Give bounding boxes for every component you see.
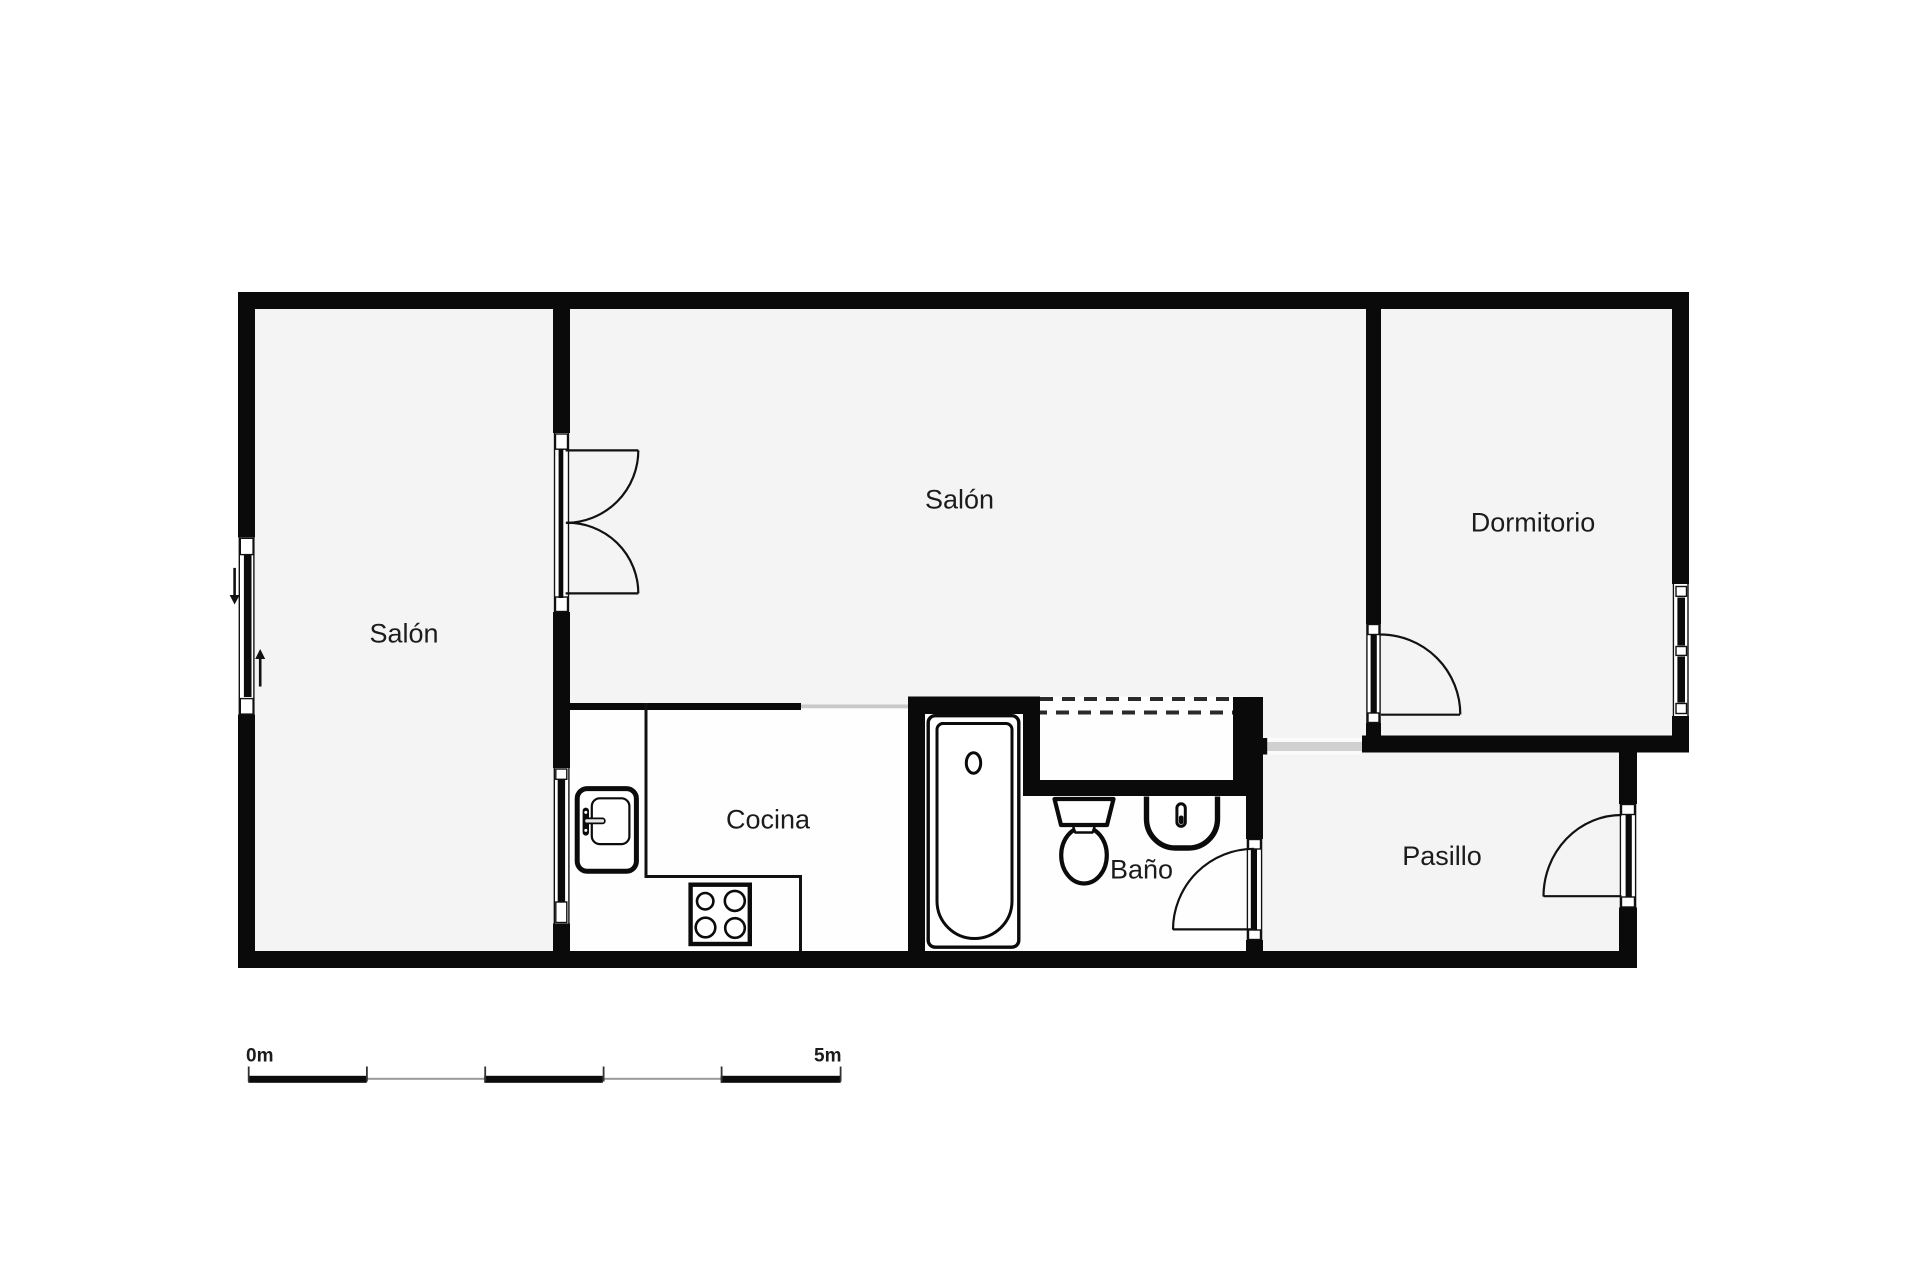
svg-text:Baño: Baño — [1110, 855, 1173, 885]
svg-text:Dormitorio: Dormitorio — [1471, 508, 1596, 538]
svg-text:5m: 5m — [814, 1046, 841, 1067]
svg-text:Pasillo: Pasillo — [1402, 841, 1482, 871]
svg-text:Cocina: Cocina — [726, 805, 811, 835]
svg-text:Salón: Salón — [369, 619, 438, 649]
svg-text:0m: 0m — [246, 1046, 273, 1067]
svg-text:Salón: Salón — [925, 485, 994, 515]
